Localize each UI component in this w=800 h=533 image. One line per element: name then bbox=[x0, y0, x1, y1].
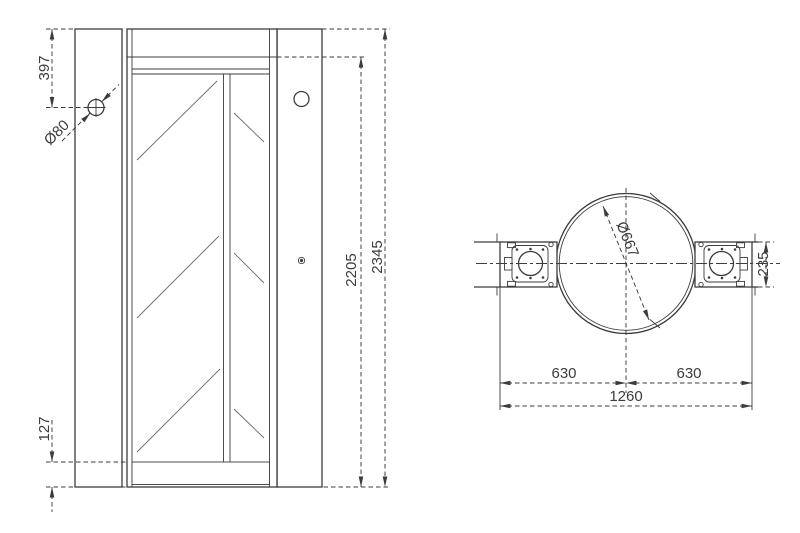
turnstile-drawing: 397 Ø80 127 2205 bbox=[0, 0, 800, 533]
left-post bbox=[474, 234, 557, 296]
dim-127: 127 bbox=[36, 416, 54, 512]
dim-630-right-label: 630 bbox=[676, 365, 701, 382]
dim-2345-label: 2345 bbox=[369, 240, 386, 273]
dim-1260: 1260 bbox=[500, 388, 752, 408]
dim-630-left-label: 630 bbox=[551, 365, 576, 382]
dim-397: 397 bbox=[36, 29, 54, 108]
dim-2205: 2205 bbox=[343, 57, 363, 487]
dim-2205-label: 2205 bbox=[343, 253, 360, 286]
plan-view: Ø667 235 630 630 1260 bbox=[474, 188, 780, 410]
dim-397-label: 397 bbox=[36, 55, 53, 80]
dim-235-label: 235 bbox=[755, 251, 772, 276]
right-post bbox=[695, 234, 758, 296]
left-column bbox=[75, 29, 122, 487]
front-view: 397 Ø80 127 2205 bbox=[36, 29, 390, 512]
dim-127-label: 127 bbox=[36, 416, 53, 441]
dim-80-label: Ø80 bbox=[41, 117, 73, 149]
bottom-rail bbox=[132, 462, 270, 485]
dim-1260-label: 1260 bbox=[609, 388, 642, 405]
dim-235: 235 bbox=[755, 242, 774, 287]
technical-drawing-canvas: 397 Ø80 127 2205 bbox=[0, 0, 800, 533]
dim-2345: 2345 bbox=[369, 29, 387, 487]
door-frame bbox=[127, 29, 277, 487]
dim-667-label: Ø667 bbox=[612, 219, 642, 259]
